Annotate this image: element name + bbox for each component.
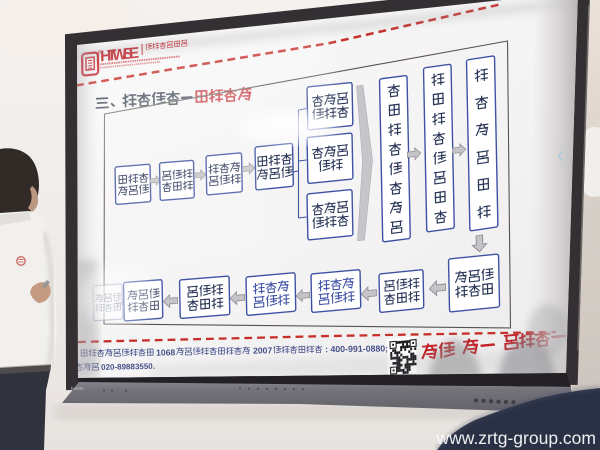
svg-text:2007: 2007 xyxy=(253,345,273,355)
svg-text:020-89883550.: 020-89883550. xyxy=(101,362,155,372)
svg-text:1068: 1068 xyxy=(156,347,176,357)
svg-text:: 400-991-0880;: : 400-991-0880; xyxy=(325,343,388,354)
svg-text:www.zrtg-group.com: www.zrtg-group.com xyxy=(436,428,597,448)
svg-text:horion: horion xyxy=(71,386,84,391)
